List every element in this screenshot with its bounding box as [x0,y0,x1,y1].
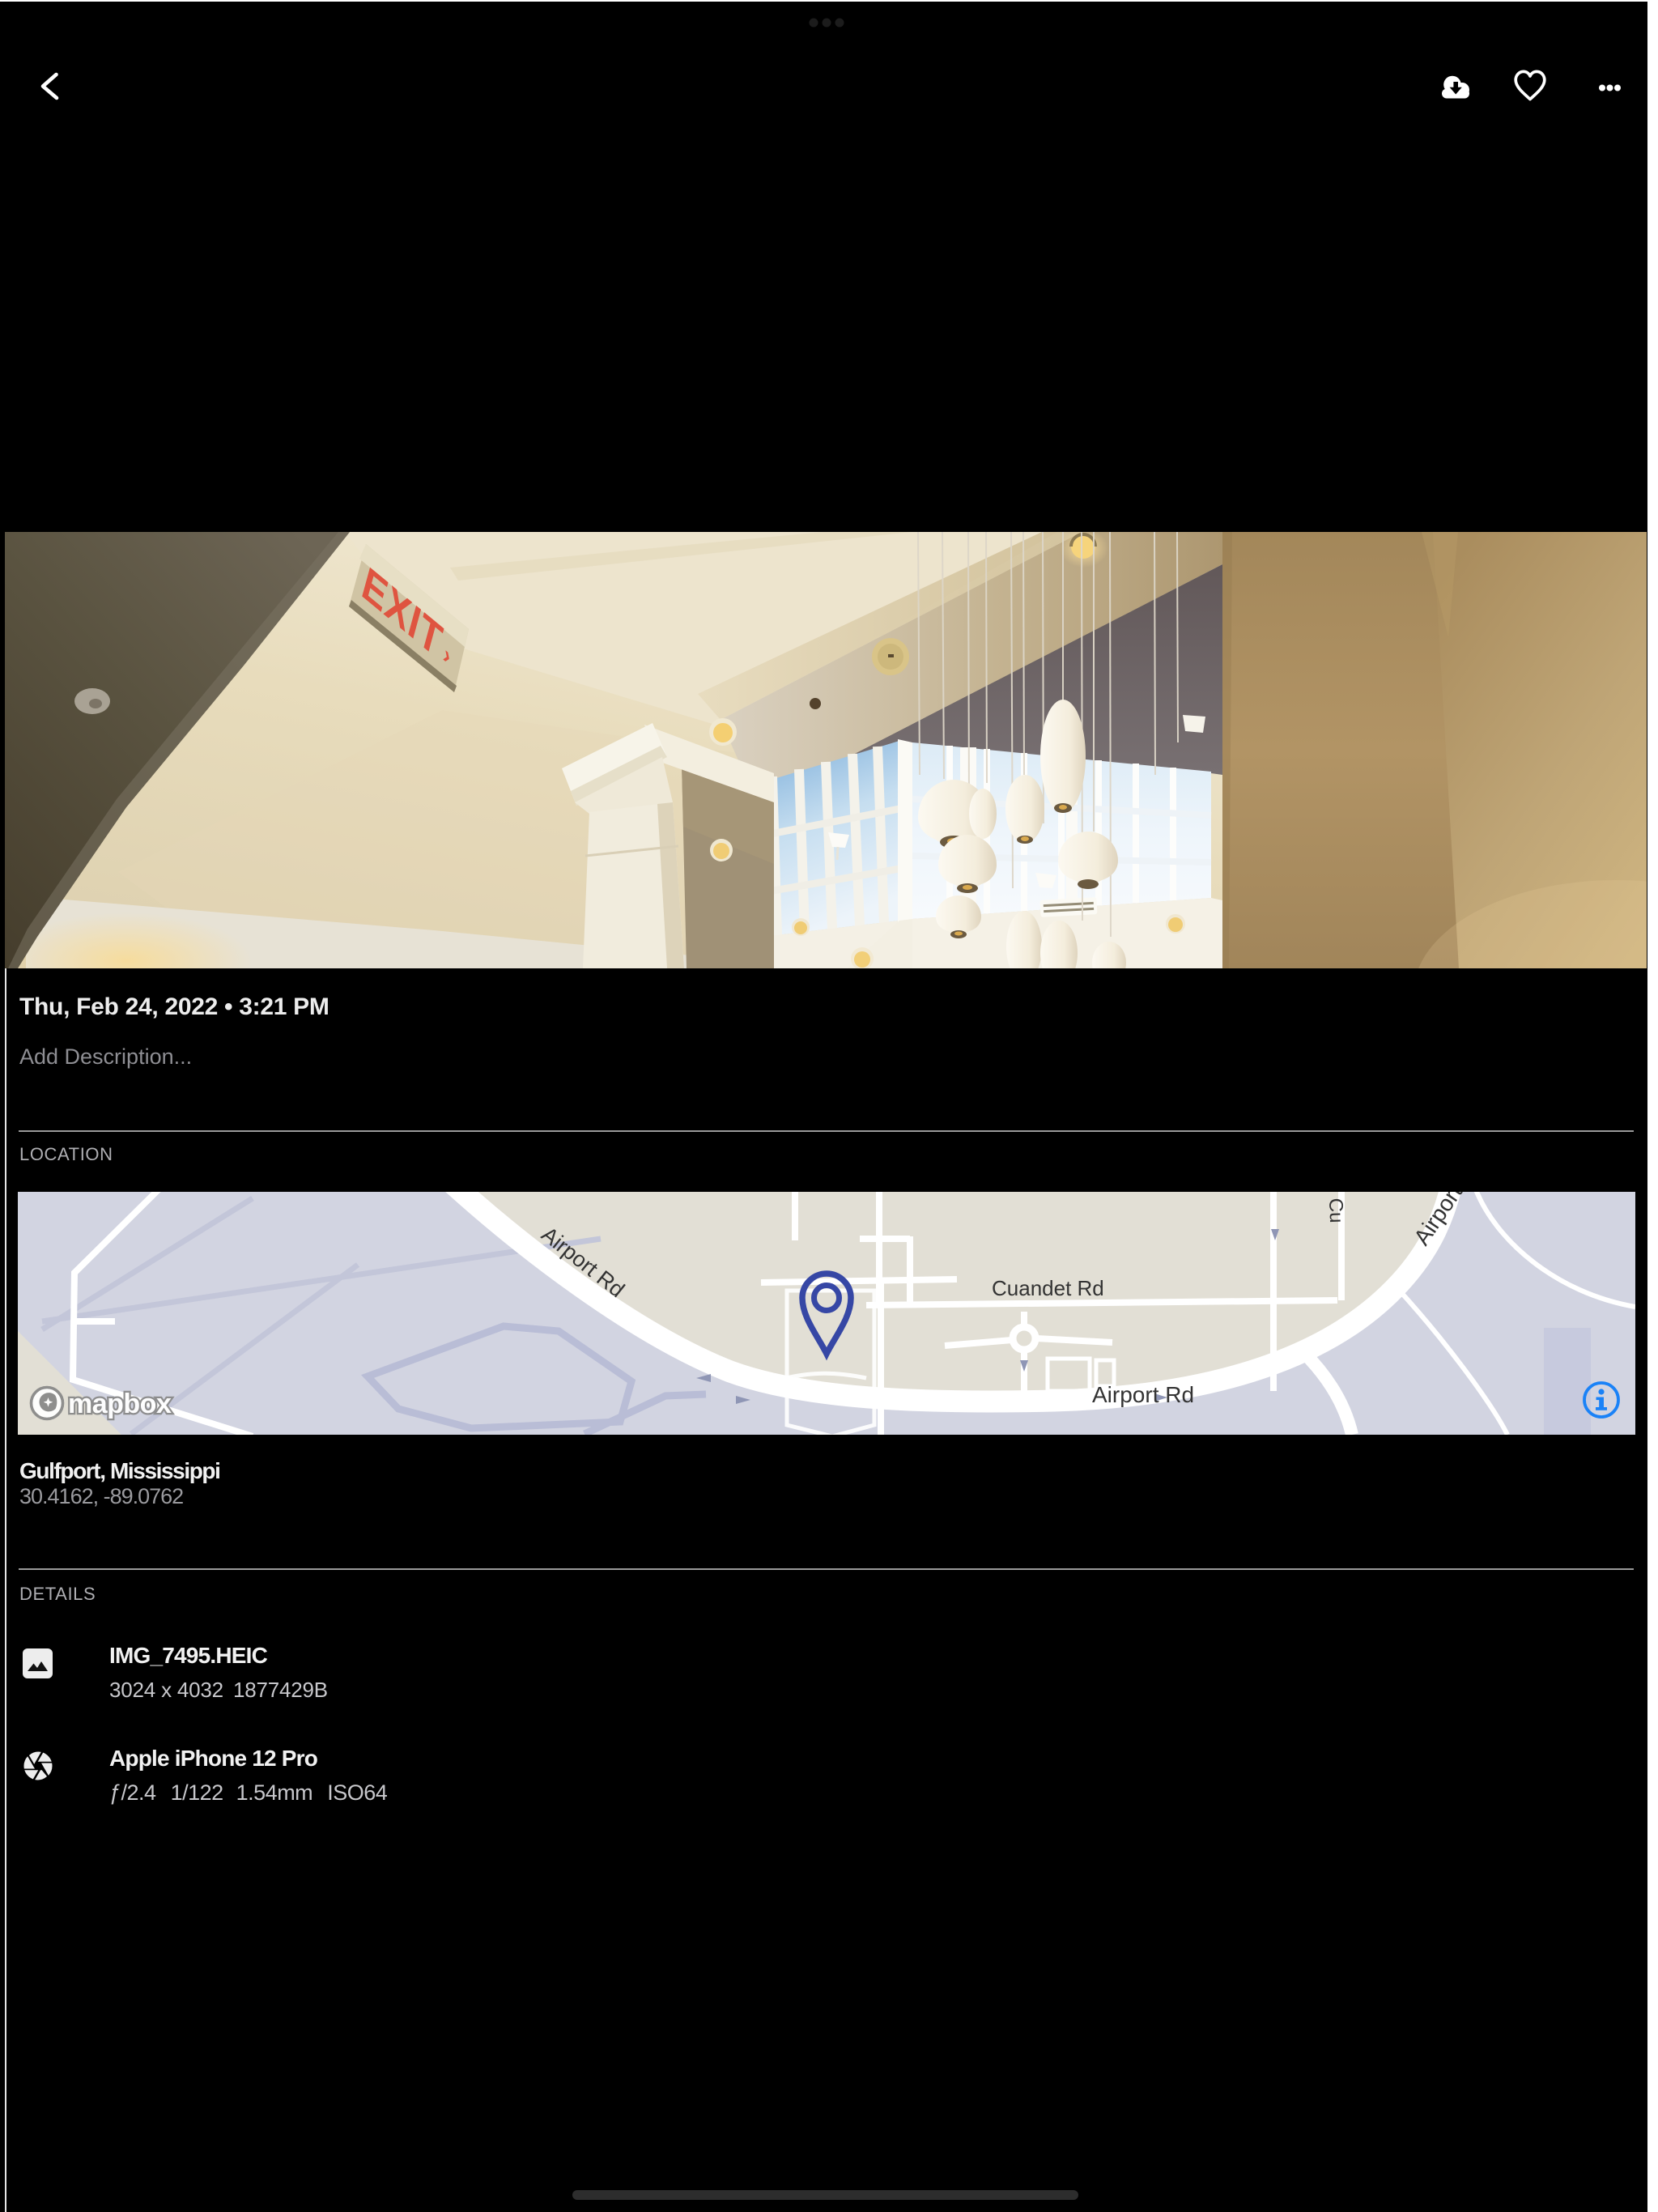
svg-text:mapbox: mapbox [68,1389,172,1419]
svg-text:Airport Rd: Airport Rd [1092,1382,1194,1407]
svg-text:Cuandet Rd: Cuandet Rd [992,1276,1104,1300]
svg-text:Cu: Cu [1324,1197,1347,1223]
